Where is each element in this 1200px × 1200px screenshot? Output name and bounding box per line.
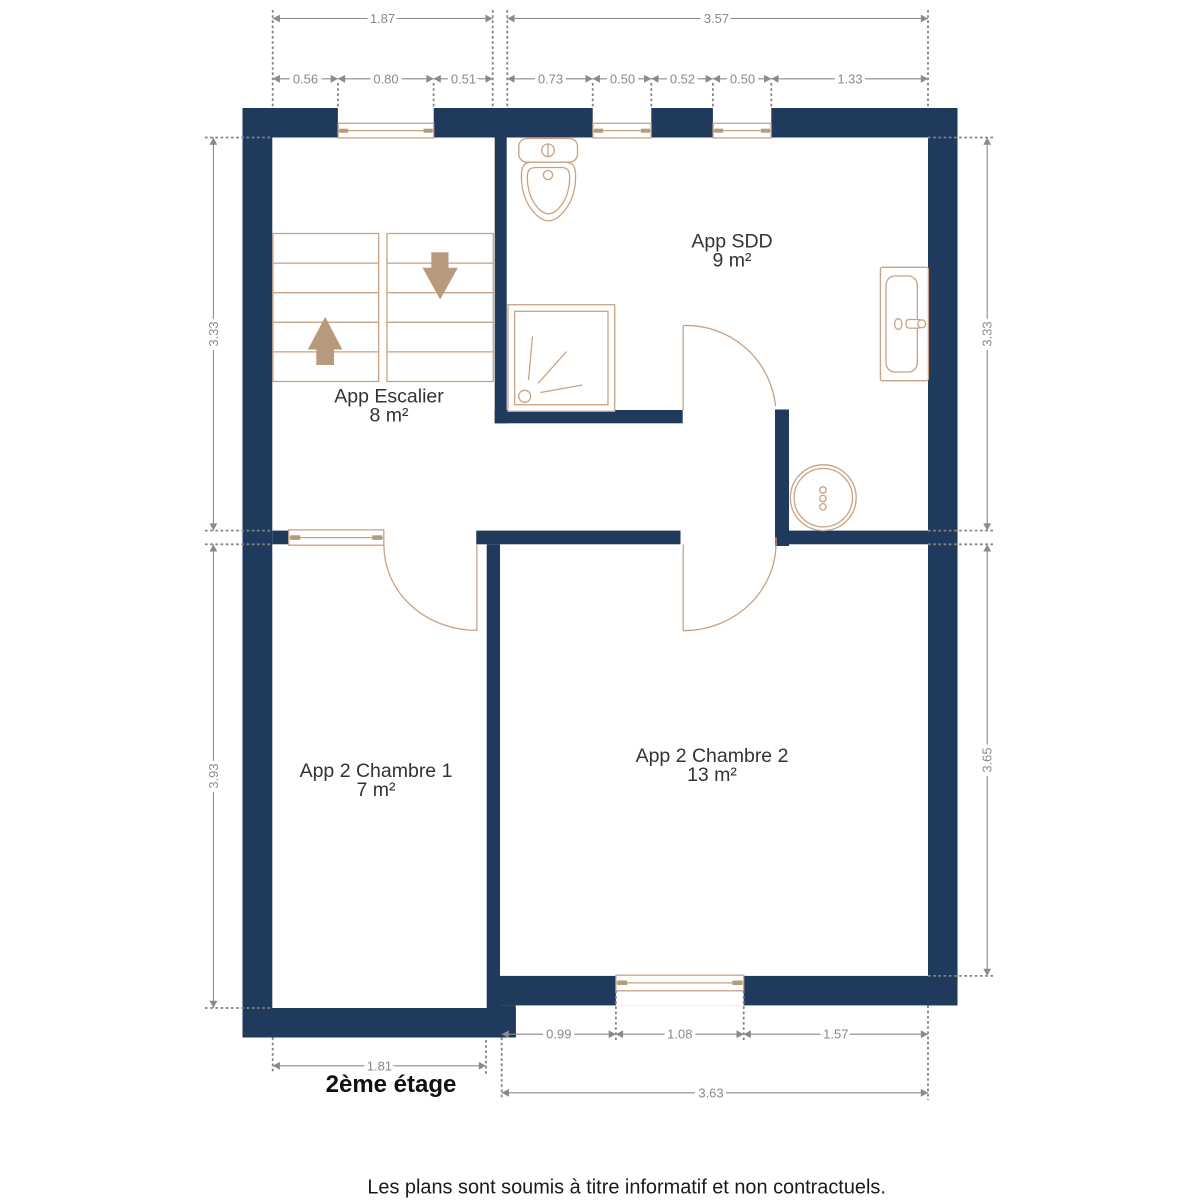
svg-text:1.08: 1.08 xyxy=(667,1027,692,1042)
svg-text:13 m²: 13 m² xyxy=(687,764,737,786)
svg-text:3.33: 3.33 xyxy=(980,321,995,346)
svg-text:2ème étage: 2ème étage xyxy=(326,1071,457,1098)
svg-text:0.80: 0.80 xyxy=(373,71,398,86)
svg-text:0.52: 0.52 xyxy=(670,71,695,86)
svg-text:3.57: 3.57 xyxy=(704,11,729,26)
svg-text:0.50: 0.50 xyxy=(610,71,635,86)
svg-text:0.51: 0.51 xyxy=(451,71,476,86)
svg-text:9 m²: 9 m² xyxy=(713,250,753,272)
svg-text:3.65: 3.65 xyxy=(980,747,995,772)
svg-text:0.50: 0.50 xyxy=(730,71,755,86)
svg-text:0.73: 0.73 xyxy=(538,71,563,86)
svg-text:Les plans sont soumis à titre: Les plans sont soumis à titre informatif… xyxy=(367,1176,886,1198)
svg-text:0.99: 0.99 xyxy=(546,1027,571,1042)
svg-text:1.87: 1.87 xyxy=(370,11,395,26)
svg-text:1.33: 1.33 xyxy=(837,71,862,86)
svg-text:3.93: 3.93 xyxy=(206,763,221,788)
svg-text:3.63: 3.63 xyxy=(698,1085,723,1100)
svg-text:8 m²: 8 m² xyxy=(370,405,410,427)
svg-text:3.33: 3.33 xyxy=(206,321,221,346)
svg-text:7 m²: 7 m² xyxy=(357,779,397,801)
svg-text:1.57: 1.57 xyxy=(823,1027,848,1042)
svg-text:0.56: 0.56 xyxy=(293,71,318,86)
